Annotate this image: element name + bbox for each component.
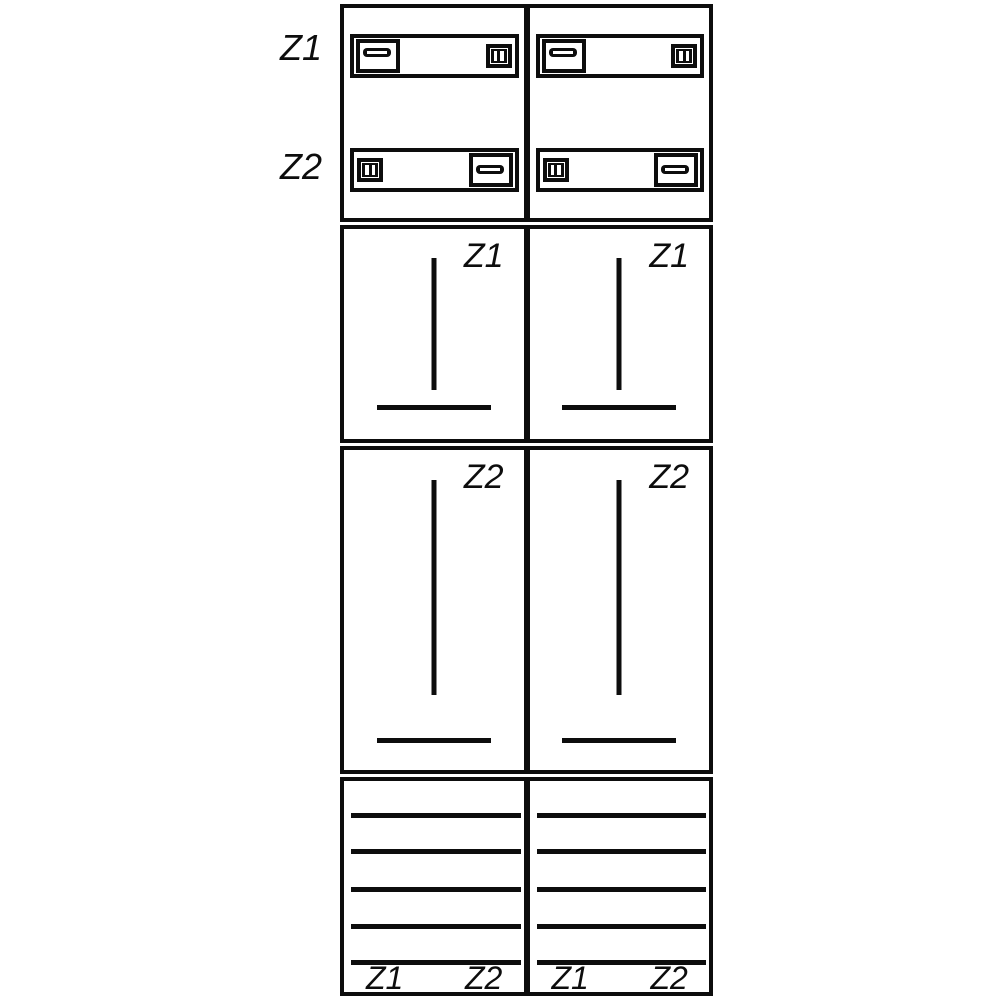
z1-field-label: Z1 xyxy=(649,239,689,273)
terminal-pair-icon xyxy=(357,158,383,182)
slot-line xyxy=(665,168,685,171)
meter-mount-base-line xyxy=(562,405,676,410)
meter-cartridge-icon xyxy=(654,153,698,187)
terminal-windows xyxy=(362,163,378,177)
meter-cartridge-icon xyxy=(356,39,400,73)
meter-mount-base-line xyxy=(377,738,491,743)
slot-line xyxy=(553,51,573,54)
terminal-window xyxy=(372,165,376,175)
terminal-window xyxy=(686,51,690,61)
z1-meter-field-section: Z1 Z1 xyxy=(340,225,713,443)
z2-meter-field-section: Z2 Z2 xyxy=(340,446,713,774)
side-label-z2: Z2 xyxy=(230,149,322,185)
z1-field-label: Z1 xyxy=(464,239,504,273)
terminal-pair-icon xyxy=(486,44,512,68)
meter-panel-column-1 xyxy=(340,4,527,222)
meter-panel-section xyxy=(340,4,713,222)
reserve-label-z2: Z2 xyxy=(651,962,688,994)
side-label-z1: Z1 xyxy=(230,30,322,66)
terminal-windows xyxy=(676,49,692,63)
z2-rail-device xyxy=(536,148,705,192)
reserve-row-line xyxy=(537,813,707,818)
z1-rail-device xyxy=(536,34,705,78)
reserve-row-line xyxy=(351,924,521,929)
meter-mount-base-line xyxy=(562,738,676,743)
terminal-window xyxy=(500,51,504,61)
z2-field-column-1: Z2 xyxy=(340,446,527,774)
z1-field-column-1: Z1 xyxy=(340,225,527,443)
reserve-row-line xyxy=(537,849,707,854)
slot-line xyxy=(480,168,500,171)
meter-cartridge-icon xyxy=(469,153,513,187)
slot-icon xyxy=(476,165,504,174)
meter-mount-base-line xyxy=(377,405,491,410)
meter-panel-column-2 xyxy=(527,4,714,222)
z1-field-column-2: Z1 xyxy=(527,225,714,443)
reserve-row-line xyxy=(537,887,707,892)
terminal-window xyxy=(365,165,369,175)
terminal-windows xyxy=(491,49,507,63)
slot-icon xyxy=(363,48,391,57)
reserve-row-line xyxy=(351,887,521,892)
reserve-section: Z1 Z2 Z1 Z2 xyxy=(340,777,713,996)
reserve-label-z1: Z1 xyxy=(552,962,589,994)
slot-icon xyxy=(549,48,577,57)
terminal-windows xyxy=(548,163,564,177)
reserve-column-1: Z1 Z2 xyxy=(340,777,527,996)
meter-mount-vertical-line xyxy=(431,480,436,695)
meter-mount-vertical-line xyxy=(617,480,622,695)
terminal-pair-icon xyxy=(543,158,569,182)
reserve-row-line xyxy=(351,813,521,818)
terminal-window xyxy=(551,165,555,175)
z1-rail-device xyxy=(350,34,519,78)
cabinet-frame: Z1 Z1 Z2 Z2 xyxy=(340,4,713,996)
z2-rail-device xyxy=(350,148,519,192)
meter-cartridge-icon xyxy=(542,39,586,73)
slot-line xyxy=(367,51,387,54)
reserve-column-2: Z1 Z2 xyxy=(527,777,714,996)
terminal-pair-icon xyxy=(671,44,697,68)
z2-field-column-2: Z2 xyxy=(527,446,714,774)
reserve-row-line xyxy=(351,849,521,854)
reserve-row-line xyxy=(537,924,707,929)
z2-field-label: Z2 xyxy=(649,460,689,494)
z2-field-label: Z2 xyxy=(464,460,504,494)
slot-icon xyxy=(661,165,689,174)
reserve-label-z2: Z2 xyxy=(465,962,502,994)
meter-cabinet-diagram: Z1 Z2 xyxy=(0,0,1000,1000)
terminal-window xyxy=(557,165,561,175)
terminal-window xyxy=(679,51,683,61)
terminal-window xyxy=(494,51,498,61)
meter-mount-vertical-line xyxy=(617,258,622,390)
reserve-label-z1: Z1 xyxy=(366,962,403,994)
meter-mount-vertical-line xyxy=(431,258,436,390)
